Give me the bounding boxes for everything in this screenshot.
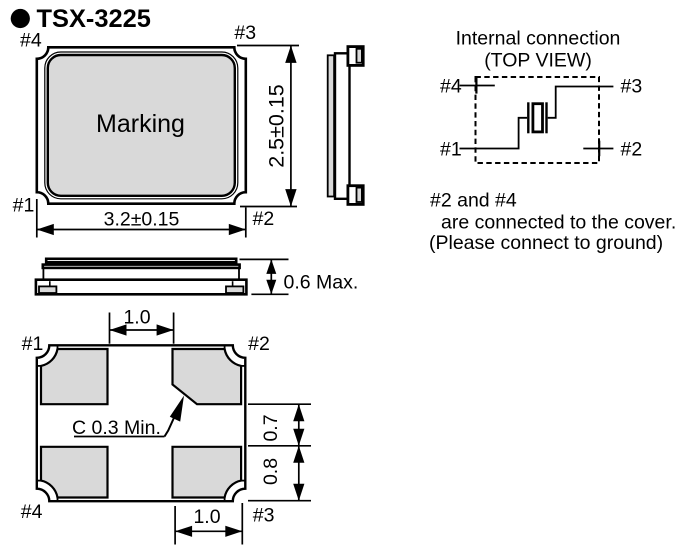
svg-text:0.7: 0.7 bbox=[260, 414, 282, 441]
svg-text:0.6 Max.: 0.6 Max. bbox=[284, 272, 359, 294]
svg-text:#4: #4 bbox=[21, 501, 43, 523]
svg-text:Marking: Marking bbox=[96, 110, 185, 138]
svg-text:#2 and #4: #2 and #4 bbox=[430, 190, 517, 212]
svg-text:#3: #3 bbox=[253, 505, 275, 527]
svg-text:1.0: 1.0 bbox=[193, 506, 220, 528]
svg-text:are connected to the cover.: are connected to the cover. bbox=[441, 212, 676, 234]
svg-text:3.2±0.15: 3.2±0.15 bbox=[104, 209, 180, 231]
svg-text:#2: #2 bbox=[253, 208, 275, 230]
svg-text:#1: #1 bbox=[22, 333, 44, 355]
svg-text:1.0: 1.0 bbox=[123, 307, 150, 329]
svg-text:0.8: 0.8 bbox=[260, 458, 282, 485]
svg-text:#3: #3 bbox=[234, 22, 256, 44]
svg-text:#1: #1 bbox=[440, 139, 462, 161]
svg-text:2.5±0.15: 2.5±0.15 bbox=[265, 84, 289, 168]
svg-text:(Please connect to ground): (Please connect to ground) bbox=[429, 232, 663, 254]
svg-text:#4: #4 bbox=[440, 76, 462, 98]
svg-text:(TOP VIEW): (TOP VIEW) bbox=[484, 50, 592, 72]
svg-text:#2: #2 bbox=[621, 139, 643, 161]
svg-text:#3: #3 bbox=[621, 76, 643, 98]
svg-text:#1: #1 bbox=[13, 195, 35, 217]
svg-text:#4: #4 bbox=[20, 30, 42, 52]
svg-text:#2: #2 bbox=[248, 333, 270, 355]
svg-text:Internal connection: Internal connection bbox=[456, 28, 621, 50]
svg-text:TSX-3225: TSX-3225 bbox=[37, 5, 151, 33]
